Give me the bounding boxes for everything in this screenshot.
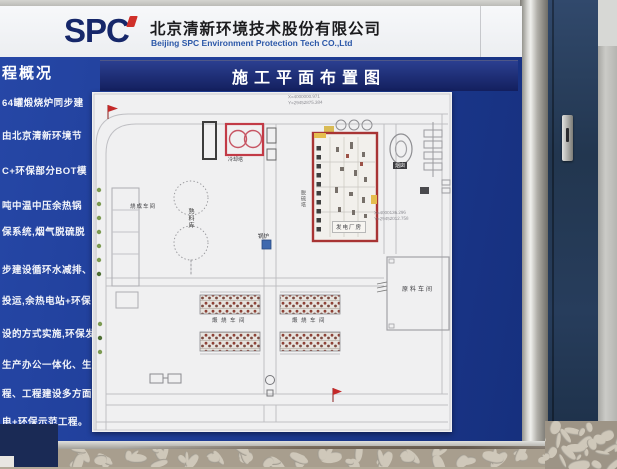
desulfurization-label: 脱硫塔 <box>300 190 307 208</box>
sidebar-line: 设的方式实施,环保发 <box>2 326 94 340</box>
site-plan-panel: X=4000000.971 Y=29452875.384 X=4000136.2… <box>92 92 452 432</box>
chimney-label: 烟囱 <box>393 162 407 169</box>
sidebar-line: 步建设循环水减排、脱 <box>2 262 94 276</box>
calcining-workshop-label: 煅烧车间 <box>284 316 336 324</box>
company-name-cn: 北京清新环境技术股份有限公司 <box>150 17 381 39</box>
sidebar-line: 64罐煅烧炉同步建 <box>2 95 84 109</box>
blue-container-door <box>548 0 598 445</box>
coordinate-label: X=4000000.971 Y=29452875.384 <box>288 94 323 106</box>
rock <box>545 436 546 443</box>
right-equipment <box>420 122 450 194</box>
red-flag-icon <box>333 388 342 402</box>
rock <box>590 459 604 469</box>
raw-material-building <box>377 257 449 330</box>
sidebar-line: 生产办公一体化、生产 <box>2 357 94 371</box>
plan-title: 施工平面布置图 <box>232 64 386 88</box>
gravel-ground <box>0 449 617 467</box>
firing-workshop-label: 烧成车间 <box>130 202 156 210</box>
aluminum-frame-post <box>520 0 548 453</box>
cooling-tower-label: 冷却塔 <box>228 156 243 163</box>
ground-light-sliver <box>0 456 14 467</box>
legend-boxes <box>150 374 181 383</box>
background-wall <box>596 0 617 467</box>
power-house-label: 发电厂房 <box>332 221 366 233</box>
information-board: SPC 北京清新环境技术股份有限公司 Beijing SPC Environme… <box>0 6 522 442</box>
rock <box>584 422 593 433</box>
calcining-workshop-blocks <box>200 292 340 396</box>
clinker-silo-label: 熟料库 <box>186 208 195 229</box>
raw-material-label: 原料车间 <box>402 284 434 293</box>
rock <box>604 457 617 469</box>
coordinate-y: Y=29452012.758 <box>374 215 409 221</box>
sidebar-line: 保系统,烟气脱硫脱 <box>2 224 85 238</box>
project-overview-sidebar: 程概况 64罐煅烧炉同步建 由北京清新环境节 C+环保部分BOT模 吨中温中压余… <box>0 6 94 442</box>
coordinate-y: Y=29452875.384 <box>288 99 323 105</box>
container-door-seam <box>552 0 554 445</box>
boiler-label: 锅炉 <box>258 232 269 240</box>
calcining-workshop-label: 煅烧车间 <box>204 316 256 324</box>
cooling-tower-building <box>226 124 263 155</box>
plan-title-bar: 施工平面布置图 <box>100 60 518 91</box>
coordinate-label: X=4000136.296 Y=29452012.758 <box>374 210 409 222</box>
sidebar-line: 由北京清新环境节 <box>2 128 82 142</box>
container-door-keyhole <box>566 128 569 142</box>
site-plan-drawing <box>92 92 452 432</box>
gravel-ground-corner <box>545 421 617 469</box>
chimney <box>390 134 412 164</box>
rock <box>149 458 168 467</box>
sidebar-line: 吨中温中压余热锅 <box>2 198 82 212</box>
sidebar-line: 程、工程建设多方面树立 <box>2 386 94 400</box>
frame-seam <box>480 6 481 57</box>
logo-red-accent-icon <box>126 16 138 27</box>
sidebar-line: C+环保部分BOT模 <box>2 163 87 177</box>
black-building <box>203 122 216 159</box>
company-name-en: Beijing SPC Environment Protection Tech … <box>151 38 353 48</box>
rock <box>430 453 449 467</box>
trees <box>97 188 102 354</box>
sidebar-heading: 程概况 <box>2 62 53 83</box>
rock <box>453 453 470 467</box>
sidebar-line: 投运,余热电站+环保 <box>2 293 91 307</box>
